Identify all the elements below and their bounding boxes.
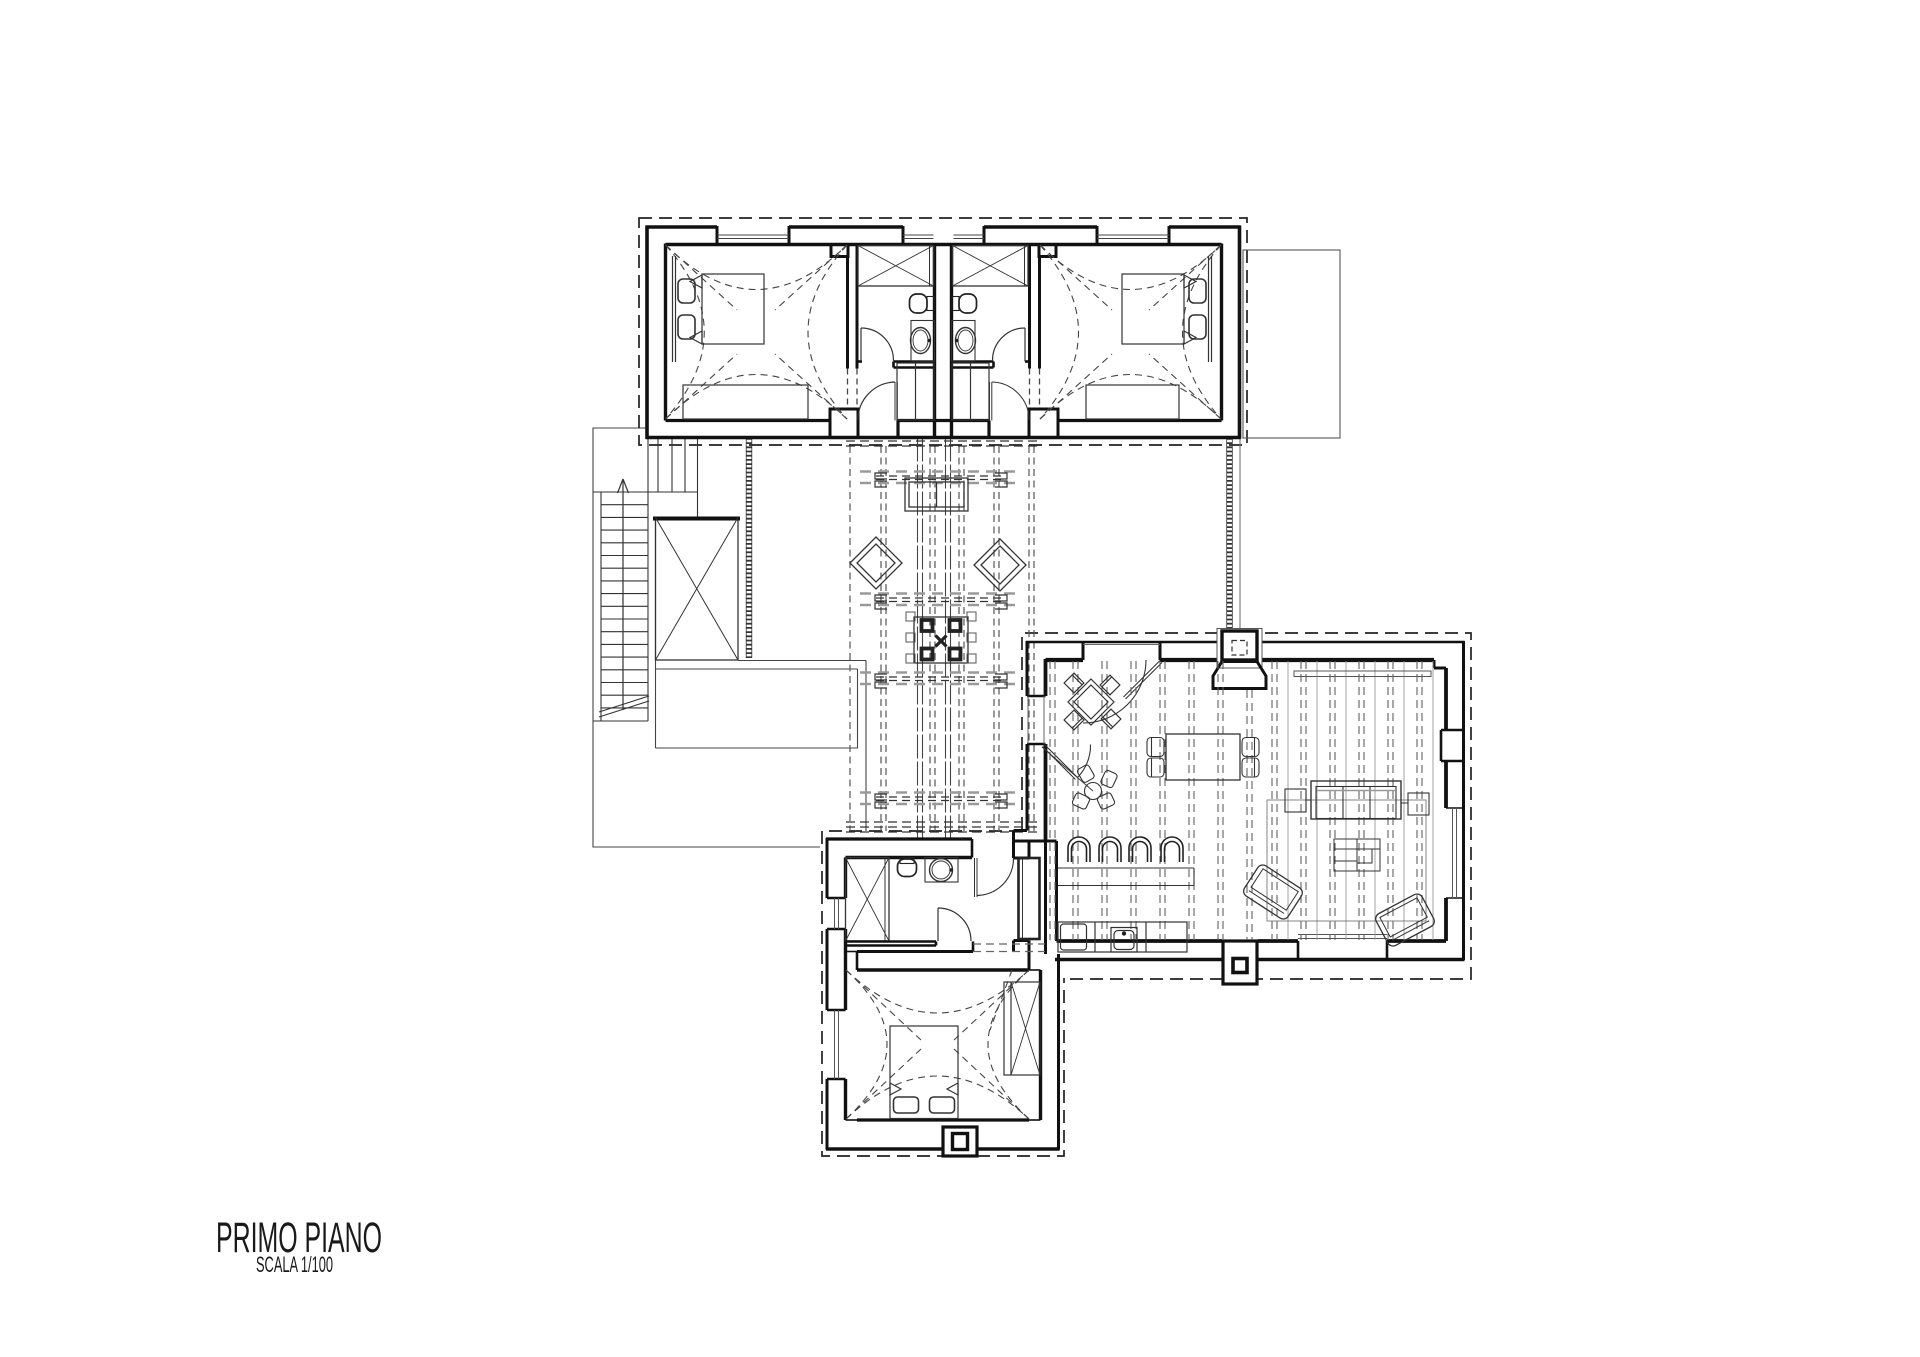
svg-text:SCALA 1/100: SCALA 1/100 — [256, 1252, 333, 1277]
